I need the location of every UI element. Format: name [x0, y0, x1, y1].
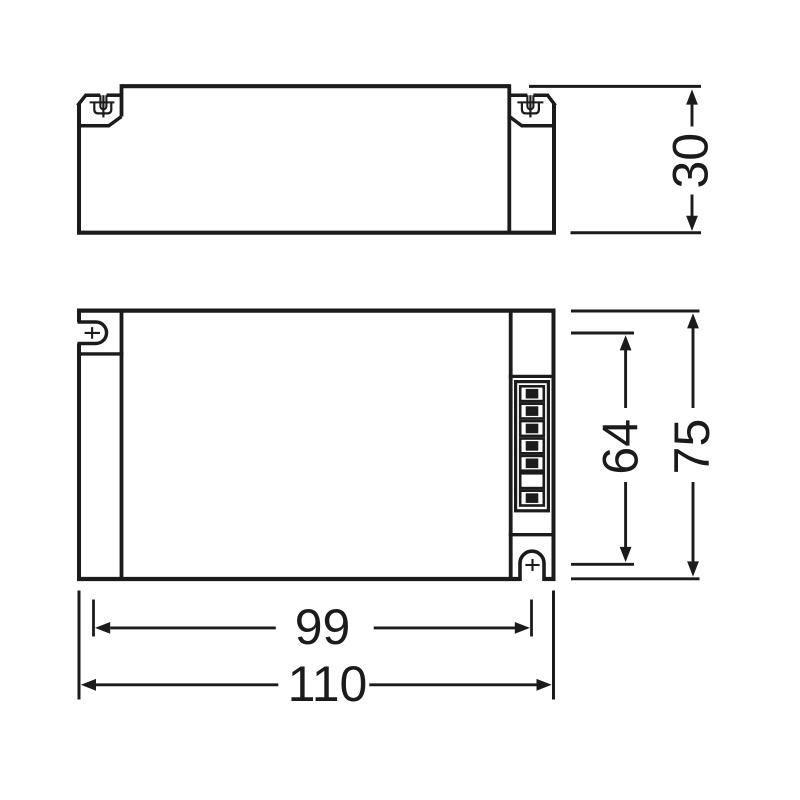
- svg-text:64: 64: [593, 419, 649, 475]
- svg-text:99: 99: [295, 599, 351, 655]
- svg-text:30: 30: [663, 133, 719, 189]
- svg-text:110: 110: [288, 656, 368, 712]
- svg-text:75: 75: [664, 419, 720, 475]
